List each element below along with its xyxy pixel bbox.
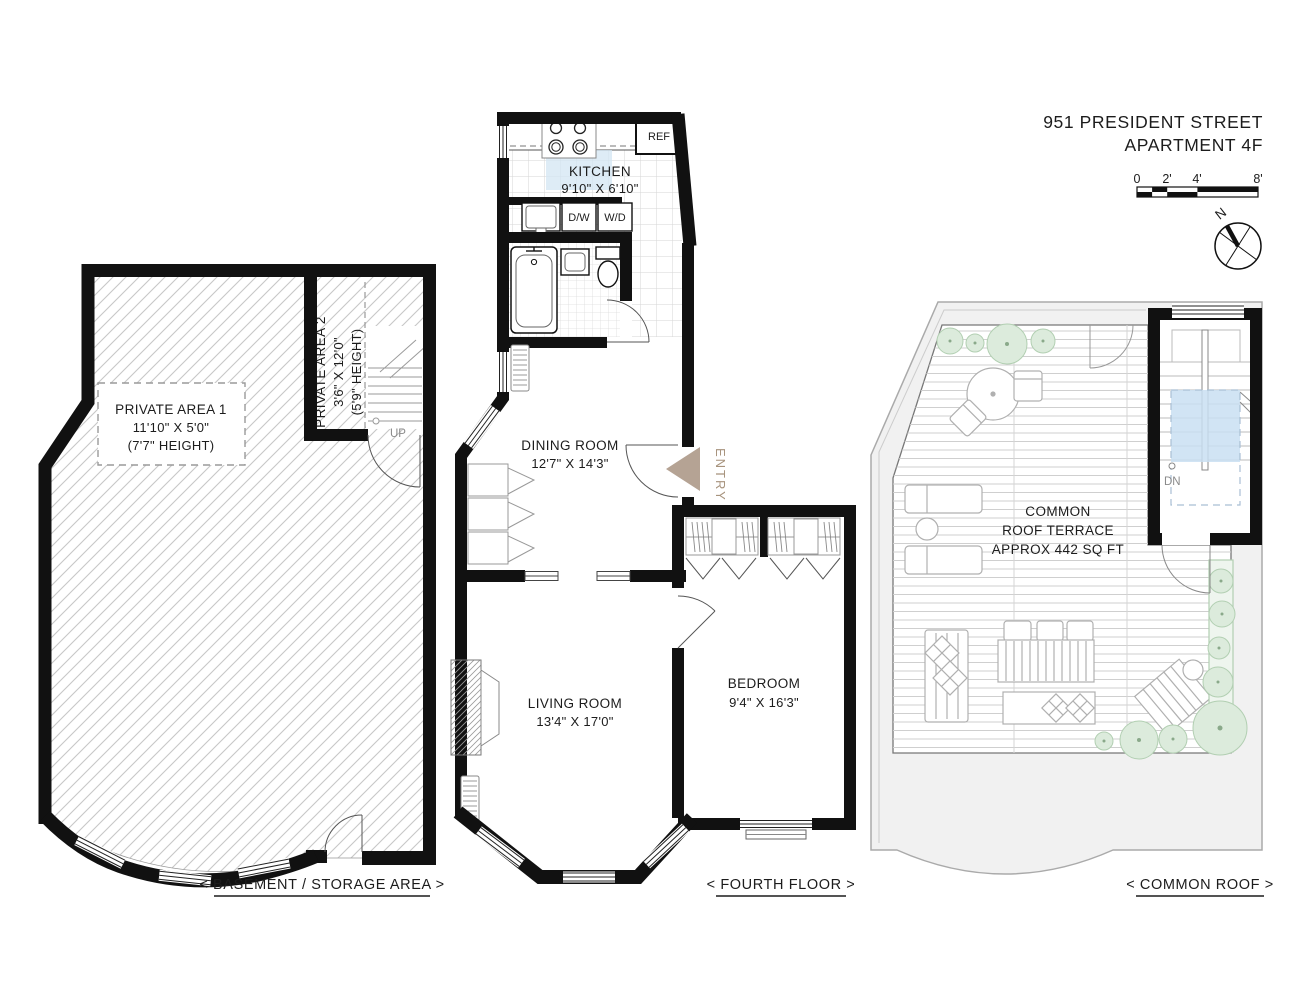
dining-radiator-icon [511,345,529,391]
living-bay-window-3 [643,824,690,869]
dining-angled-window [463,405,500,449]
bedroom-name: BEDROOM [728,676,801,691]
hall-tile-floor [632,240,682,337]
dining-room-dims: 12'7" X 14'3" [531,456,608,471]
dining-table-set [998,621,1094,682]
bathroom-right-wall [620,243,632,301]
bulkhead-door-opening [1162,533,1210,545]
entry-arrow-icon [666,447,700,491]
bedroom-west-wall-lower [672,648,684,818]
living-room-dims: 13'4" X 17'0" [536,714,613,729]
terrace-label-1: COMMON [1025,504,1090,519]
bathtub-icon [511,247,557,333]
scale-tick-8: 8' [1253,172,1262,186]
terrace-label-2: ROOF TERRACE [1002,523,1114,538]
private-area-2-dims: 3'6" X 12'0" [331,337,346,407]
toilet-icon [596,247,620,287]
bedroom-dims: 9'4" X 16'3" [729,695,799,710]
low-table [1003,692,1095,724]
closet-divider-wall [760,517,768,557]
private-area-1-name: PRIVATE AREA 1 [115,402,227,417]
kitchen-name: KITCHEN [569,164,631,179]
living-room-name: LIVING ROOM [528,696,622,711]
stair-up-label: UP [390,428,406,440]
common-roof-label: < COMMON ROOF > [1126,877,1274,893]
kitchen-sink-icon [522,203,560,236]
living-bay-window-1 [475,826,525,867]
scale-tick-4: 4' [1192,172,1201,186]
dishwasher-label: D/W [568,212,590,224]
bathroom-sink-icon [561,249,589,275]
lounge-chair-1 [905,485,982,513]
refrigerator-label: REF [648,131,670,143]
fourth-floor-label: < FOURTH FLOOR > [707,877,856,893]
kitchen-window [497,126,509,158]
dining-room-name: DINING ROOM [521,438,618,453]
floorplan-page: PRIVATE AREA 1 11'10" X 5'0" (7'7" HEIGH… [0,0,1295,1000]
compass-rose-icon: N [1212,205,1261,269]
private-area-2-height: (5'9" HEIGHT) [349,329,364,416]
compass-north-label: N [1212,205,1229,223]
private-area-1-dims: 11'10" X 5'0" [133,420,209,435]
dining-closets [468,464,534,564]
basement-plan: PRIVATE AREA 1 11'10" X 5'0" (7'7" HEIGH… [44,264,445,896]
divider-wall-left [455,570,525,582]
dining-window [497,352,509,392]
bulkhead-window [1172,303,1244,318]
scale-tick-0: 0 [1134,172,1141,186]
side-table-2 [1183,660,1203,680]
kitchen-dims: 9'10" X 6'10" [561,181,638,196]
bedroom-closet-right [768,518,840,579]
entry-label: ENTRY [713,448,728,502]
bedroom-door [678,596,715,648]
bedroom-east-wall [844,505,856,830]
basement-top-wall [82,264,436,277]
side-table [916,518,938,540]
private-area-1-height: (7'7" HEIGHT) [128,438,215,453]
bedroom-top-wall [672,505,856,517]
bench [925,630,968,722]
terrace-label-3: APPROX 442 SQ FT [992,542,1124,557]
basement-floor-label: < BASEMENT / STORAGE AREA > [199,877,444,893]
page-title-line2: APARTMENT 4F [1125,135,1263,155]
bulkhead-left-wall [1148,308,1160,545]
bedroom-west-wall-upper [672,517,684,588]
pa2-left-wall [304,270,317,441]
bedroom-closet-left [686,518,758,579]
basement-right-wall [423,264,436,864]
fireplace-icon [451,660,499,755]
pa2-bottom-wall [304,429,368,441]
cased-opening-trim [525,572,630,581]
washer-dryer-label: W/D [604,212,625,224]
living-bay-window-2 [563,872,615,883]
bedroom-window [740,818,812,839]
common-roof-plan: DN COMMON ROOF TERRACE APPROX 442 SQ FT … [871,302,1274,896]
header: 951 PRESIDENT STREET APARTMENT 4F 0 2' 4… [1043,112,1263,269]
kitchen-bottom-wall [497,232,632,243]
skylight [1171,390,1240,462]
fourth-floor-plan: KITCHEN 9'10" X 6'10" REF D/W W/D [451,112,856,896]
scale-tick-2: 2' [1162,172,1171,186]
scale-bar: 0 2' 4' 8' [1134,172,1263,197]
floorplan-drawing: PRIVATE AREA 1 11'10" X 5'0" (7'7" HEIGH… [0,0,1295,1000]
bulkhead-right-wall [1250,308,1262,545]
stair-dn-label: DN [1164,476,1181,488]
page-title-line1: 951 PRESIDENT STREET [1043,112,1263,132]
lounge-chair-2 [905,546,982,574]
basement-bottom-wall-right [362,851,436,865]
